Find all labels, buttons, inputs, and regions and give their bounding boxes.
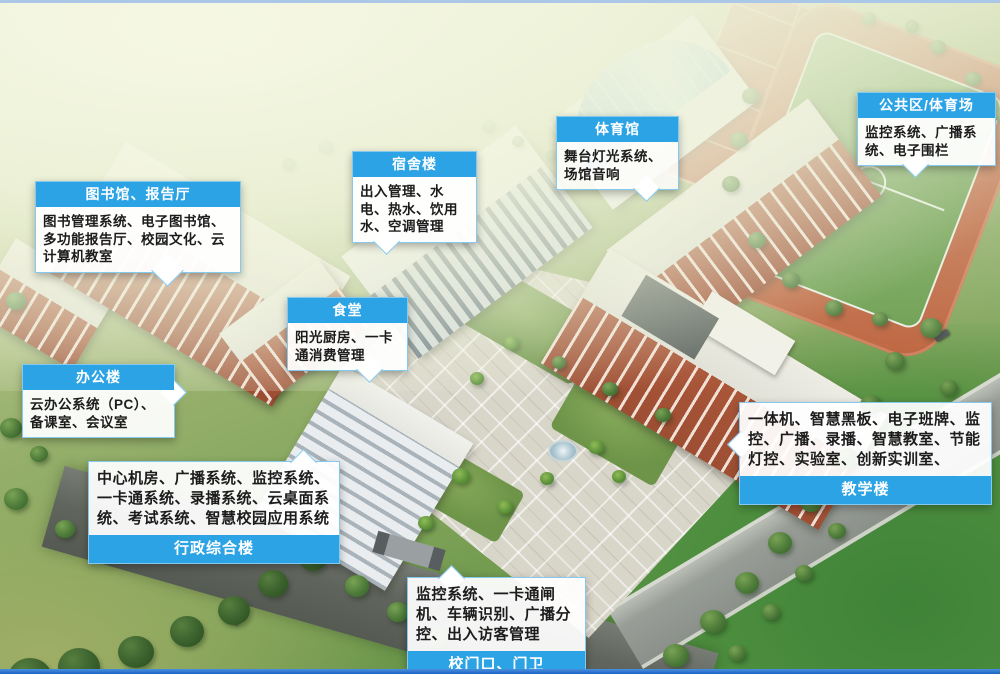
tree (497, 500, 513, 514)
fountain (548, 440, 578, 462)
tree (920, 318, 942, 338)
tree (552, 356, 566, 369)
tree (602, 382, 618, 396)
callout-body: 云办公系统（PC）、备课室、会议室 (23, 390, 174, 438)
tree (940, 380, 958, 396)
tree (282, 158, 296, 171)
callout-body: 舞台灯光系统、场馆音响 (557, 142, 678, 190)
tree (258, 570, 288, 597)
tree (735, 572, 759, 594)
tree (768, 532, 792, 554)
top-border-line (0, 0, 1000, 3)
tree (4, 488, 28, 510)
tree (965, 72, 981, 86)
tree (730, 132, 748, 148)
callout-canteen: 食堂 阳光厨房、一卡通消费管理 (287, 297, 408, 371)
callout-body: 中心机房、广播系统、监控系统、一卡通系统、录播系统、云桌面系统、考试系统、智慧校… (89, 462, 339, 535)
tree (862, 12, 876, 25)
tree (728, 645, 746, 661)
tree (795, 565, 813, 581)
callout-gate: 校门口、门卫 监控系统、一卡通闸机、车辆识别、广播分控、出入访客管理 (407, 577, 586, 674)
callout-title: 体育馆 (557, 117, 678, 142)
callout-title: 教学楼 (740, 476, 991, 504)
tree (930, 40, 946, 54)
callout-body: 图书管理系统、电子图书馆、多功能报告厅、校园文化、云计算机教室 (36, 207, 240, 272)
bottom-border-line (0, 669, 1000, 674)
tree (345, 575, 369, 597)
tree (482, 120, 496, 133)
callout-title: 办公楼 (23, 365, 174, 390)
tree (452, 468, 470, 484)
tree (387, 602, 409, 622)
callout-library: 图书馆、报告厅 图书管理系统、电子图书馆、多功能报告厅、校园文化、云计算机教室 (35, 181, 241, 273)
tree (318, 140, 334, 154)
callout-office: 办公楼 云办公系统（PC）、备课室、会议室 (22, 364, 175, 438)
callout-title: 图书馆、报告厅 (36, 182, 240, 207)
tree (170, 616, 204, 647)
callout-body: 阳光厨房、一卡通消费管理 (288, 323, 407, 371)
tree (828, 523, 846, 539)
callout-admin: 行政综合楼 中心机房、广播系统、监控系统、一卡通系统、录播系统、云桌面系统、考试… (88, 461, 340, 564)
tree (748, 232, 766, 248)
callout-title: 行政综合楼 (89, 535, 339, 563)
tree (762, 604, 780, 620)
callout-teaching: 教学楼 一体机、智慧黑板、电子班牌、监控、广播、录播、智慧教室、节能灯控、实验室… (739, 402, 992, 505)
tree (722, 176, 740, 192)
tree (218, 596, 250, 625)
tree (30, 446, 48, 462)
tree (588, 440, 604, 454)
callout-title: 公共区/体育场 (858, 93, 995, 118)
callout-body: 监控系统、一卡通闸机、车辆识别、广播分控、出入访客管理 (408, 578, 585, 651)
tree (55, 520, 75, 538)
tree (503, 336, 519, 350)
tree (540, 472, 554, 485)
tree (612, 470, 626, 483)
tree (0, 418, 22, 438)
tree (418, 516, 434, 530)
callout-title: 食堂 (288, 298, 407, 323)
tree (872, 312, 888, 326)
tree (905, 20, 919, 33)
callout-title: 宿舍楼 (353, 152, 476, 177)
tree (663, 644, 689, 667)
campus-map: 图书馆、报告厅 图书管理系统、电子图书馆、多功能报告厅、校园文化、云计算机教室 … (0, 0, 1000, 674)
tree (512, 136, 524, 147)
callout-body: 一体机、智慧黑板、电子班牌、监控、广播、录播、智慧教室、节能灯控、实验室、创新实… (740, 403, 991, 476)
tree (742, 88, 760, 104)
tree (470, 372, 484, 385)
tree (700, 610, 726, 633)
callout-public-stadium: 公共区/体育场 监控系统、广播系统、电子围栏 (857, 92, 996, 166)
callout-body: 监控系统、广播系统、电子围栏 (858, 118, 995, 166)
tree (825, 300, 843, 316)
callout-gymnasium: 体育馆 舞台灯光系统、场馆音响 (556, 116, 679, 190)
callout-dormitory: 宿舍楼 出入管理、水电、热水、饮用水、空调管理 (352, 151, 477, 243)
tree (6, 292, 26, 310)
callout-body: 出入管理、水电、热水、饮用水、空调管理 (353, 177, 476, 242)
tree (782, 272, 800, 288)
tree (118, 636, 154, 668)
tree (885, 352, 905, 370)
tree (655, 408, 671, 422)
